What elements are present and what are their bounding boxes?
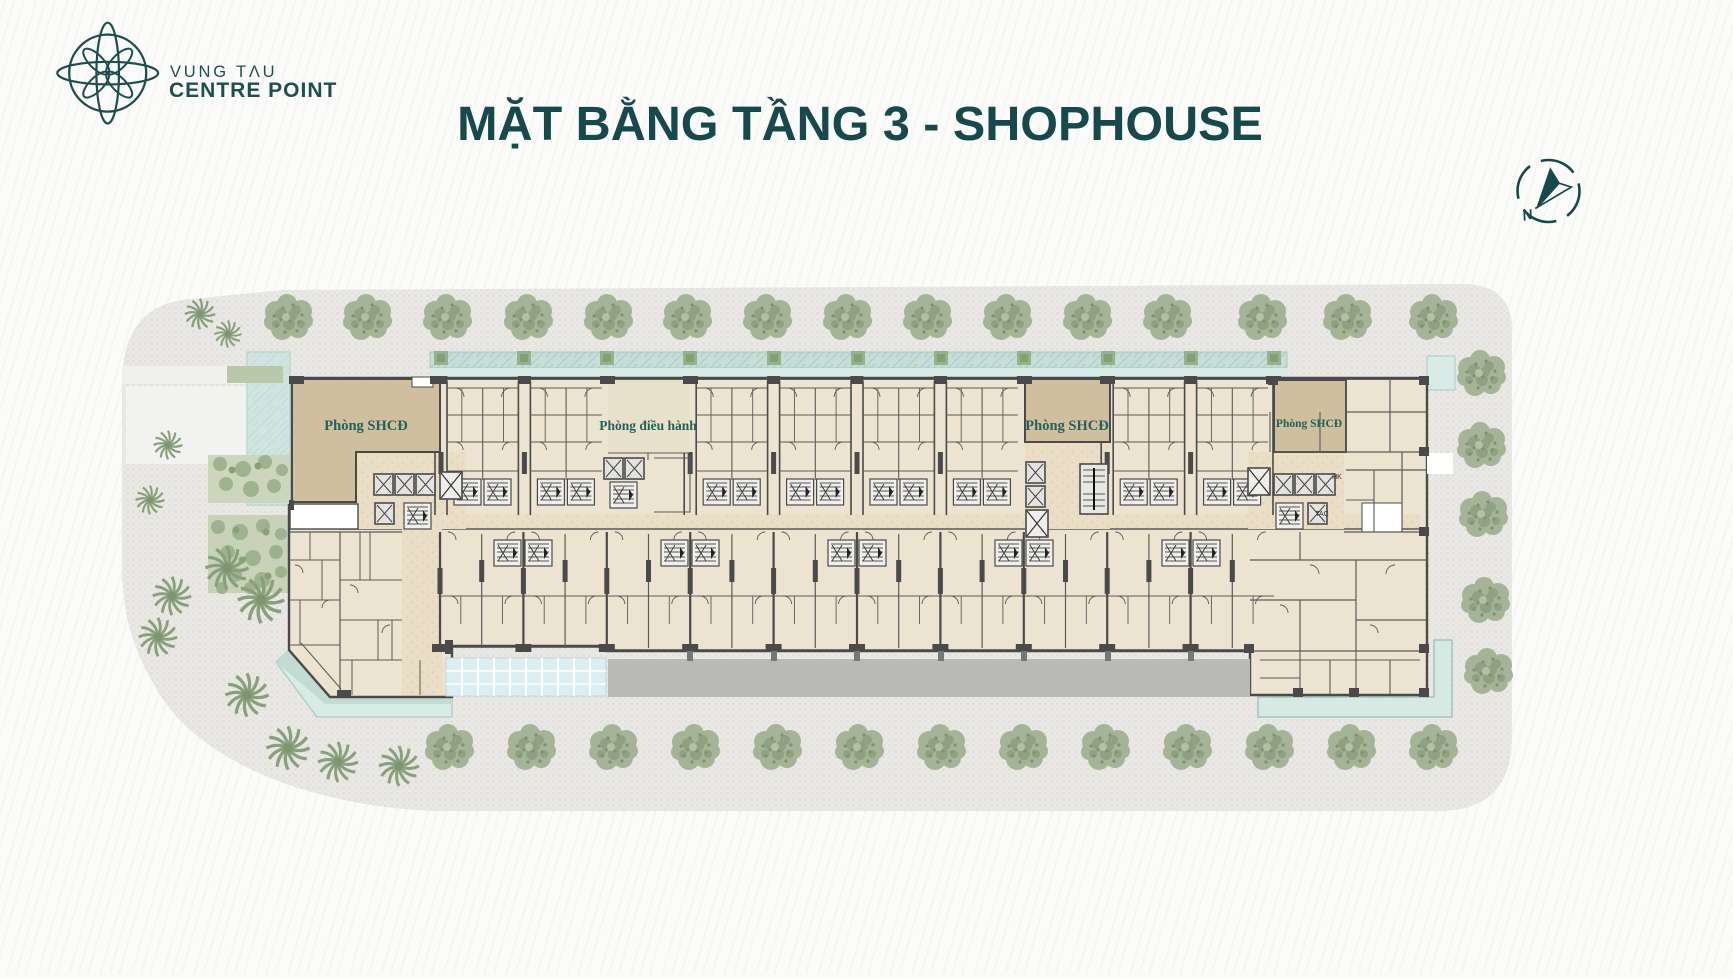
svg-text:Phòng SHCĐ: Phòng SHCĐ	[1025, 418, 1108, 434]
svg-text:HK: HK	[1332, 474, 1342, 481]
svg-text:MẶT BẰNG TẦNG 3 - SHOPHOUSE: MẶT BẰNG TẦNG 3 - SHOPHOUSE	[457, 97, 1263, 151]
svg-text:Phòng điều hành: Phòng điều hành	[599, 418, 697, 433]
svg-text:CENTRE POINT: CENTRE POINT	[169, 79, 337, 102]
svg-text:Phòng SHCĐ: Phòng SHCĐ	[324, 418, 407, 434]
svg-text:TAC: TAC	[1315, 511, 1328, 518]
svg-text:Phòng SHCĐ: Phòng SHCĐ	[1276, 418, 1342, 430]
